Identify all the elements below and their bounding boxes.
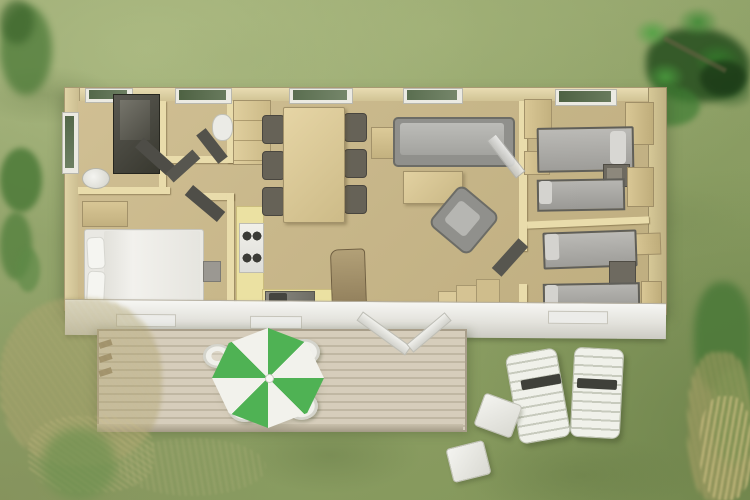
- dining-chair-right-1: [344, 113, 367, 142]
- bedroom1-wardrobe-2: [627, 167, 654, 207]
- dining-chair-left-1: [262, 115, 285, 144]
- plant-left-1: [0, 148, 42, 212]
- double-bed-pillow-1: [86, 237, 106, 270]
- dining-chair-right-2: [344, 149, 367, 178]
- dining-chair-left-2: [262, 151, 285, 180]
- green-tuft-bottom-left: [42, 428, 116, 500]
- double-bed-duvet: [104, 231, 200, 304]
- sun-lounger-2: [570, 347, 625, 439]
- master-nightstand: [203, 261, 221, 282]
- master-wardrobe: [82, 201, 128, 227]
- tree-top-right-hollow: [700, 60, 746, 96]
- wall-master-kitchen: [227, 193, 234, 305]
- sofa-side-table: [371, 127, 394, 159]
- window-bedroom1-glass: [559, 91, 611, 102]
- window-bathroom-left-glass: [65, 116, 74, 168]
- dry-grass-mid: [118, 438, 266, 496]
- bedroom2-bed-a-pillow: [545, 234, 560, 260]
- dry-grass-right-2: [700, 396, 750, 500]
- window-wc-glass: [179, 90, 226, 100]
- wc-toilet: [212, 114, 233, 141]
- bedroom1-bed-b-pillow: [539, 181, 552, 204]
- bathroom-sink: [82, 168, 110, 189]
- fascia-window-slit-3: [548, 311, 608, 324]
- kitchen-stove: [239, 223, 264, 273]
- scene-canvas: [0, 0, 750, 500]
- parasol-tip: [265, 374, 274, 383]
- foliage-top-left-2: [0, 0, 34, 44]
- window-living-glass: [407, 90, 457, 100]
- bedroom1-bed-a-pillow: [610, 131, 626, 164]
- plant-left-3: [16, 248, 40, 292]
- window-dining-glass: [293, 90, 347, 100]
- dining-chair-left-3: [262, 187, 285, 216]
- shower-tray: [120, 100, 150, 140]
- dining-table: [283, 107, 345, 223]
- dining-chair-right-3: [344, 185, 367, 214]
- wall-bathroom-wc: [159, 101, 166, 193]
- sun-lounger-2-fold: [577, 378, 617, 390]
- fascia-window-slit-2: [250, 316, 302, 329]
